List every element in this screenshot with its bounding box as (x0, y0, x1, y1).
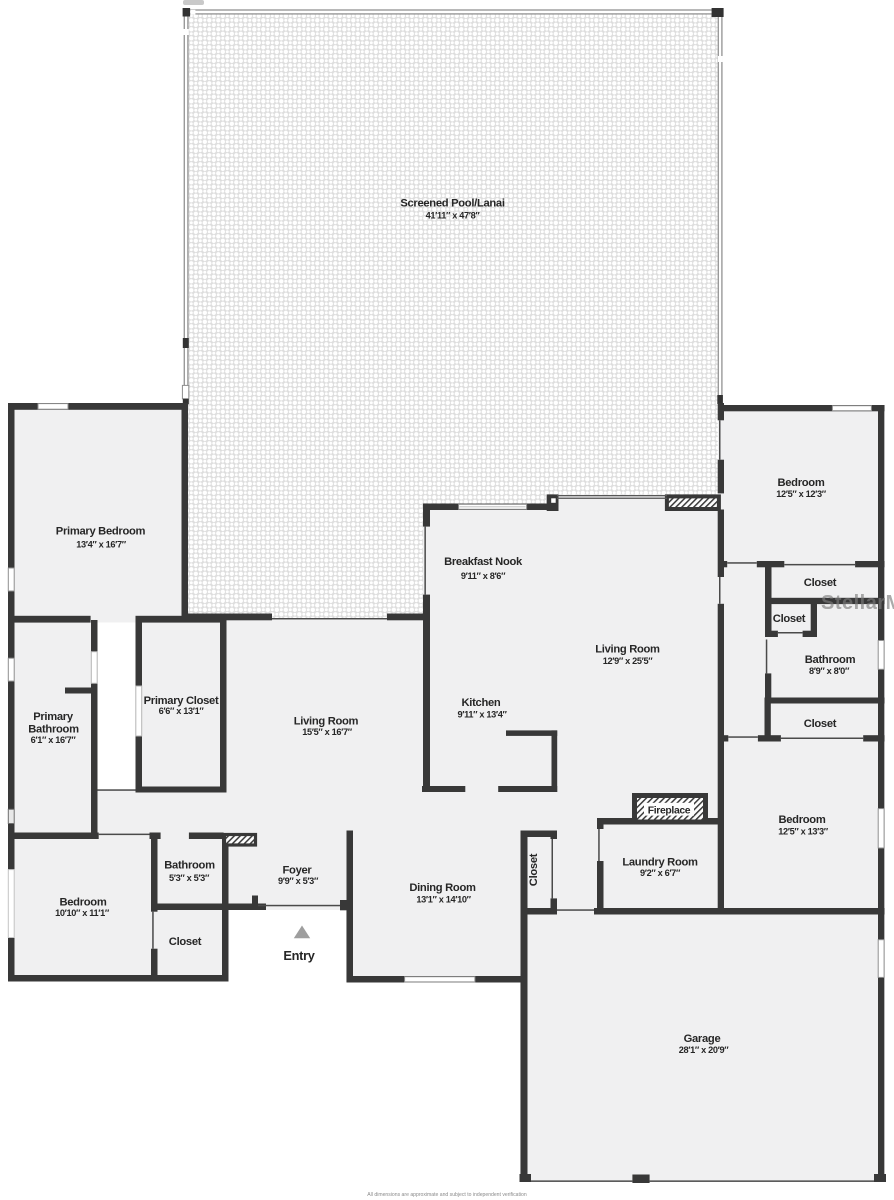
svg-text:All dimensions are approximate: All dimensions are approximate and subje… (367, 1192, 527, 1198)
svg-text:Breakfast Nook: Breakfast Nook (444, 556, 523, 568)
svg-text:Closet: Closet (169, 936, 202, 948)
svg-text:9′9″ x 5′3″: 9′9″ x 5′3″ (278, 876, 319, 886)
svg-text:Fireplace: Fireplace (648, 805, 691, 816)
svg-text:Primary: Primary (33, 711, 74, 723)
svg-text:Closet: Closet (804, 577, 837, 589)
svg-text:Kitchen: Kitchen (462, 697, 501, 709)
svg-text:15′5″ x 16′7″: 15′5″ x 16′7″ (302, 727, 352, 737)
svg-text:12′9″ x 25′5″: 12′9″ x 25′5″ (603, 656, 653, 666)
svg-text:Bedroom: Bedroom (59, 897, 106, 909)
svg-text:Bathroom: Bathroom (805, 654, 856, 666)
svg-text:Bedroom: Bedroom (778, 814, 825, 826)
svg-text:Foyer: Foyer (283, 865, 313, 877)
svg-text:28′1″ x 20′9″: 28′1″ x 20′9″ (679, 1045, 729, 1055)
svg-text:12′5″ x 12′3″: 12′5″ x 12′3″ (776, 489, 826, 499)
svg-text:Entry: Entry (283, 948, 315, 963)
svg-text:Closet: Closet (773, 613, 806, 625)
svg-text:Garage: Garage (684, 1033, 721, 1045)
svg-text:Screened Pool/Lanai: Screened Pool/Lanai (400, 198, 505, 210)
svg-text:10′10″ x 11′1″: 10′10″ x 11′1″ (55, 908, 110, 918)
svg-text:Bathroom: Bathroom (164, 860, 215, 872)
svg-text:8′9″ x 8′0″: 8′9″ x 8′0″ (809, 666, 850, 676)
svg-text:Laundry Room: Laundry Room (622, 857, 698, 869)
svg-text:Dining Room: Dining Room (409, 882, 476, 894)
svg-text:6′6″ x 13′1″: 6′6″ x 13′1″ (159, 706, 205, 716)
svg-text:13′4″ x 16′7″: 13′4″ x 16′7″ (76, 540, 126, 550)
svg-text:Living Room: Living Room (294, 716, 359, 728)
svg-text:Primary Bedroom: Primary Bedroom (56, 526, 146, 538)
svg-text:Closet: Closet (528, 853, 540, 886)
svg-text:5′3″ x 5′3″: 5′3″ x 5′3″ (169, 873, 210, 883)
svg-text:12′5″ x 13′3″: 12′5″ x 13′3″ (778, 827, 828, 837)
svg-text:9′11″ x 13′4″: 9′11″ x 13′4″ (457, 710, 507, 720)
svg-text:9′2″ x 6′7″: 9′2″ x 6′7″ (640, 868, 681, 878)
svg-text:6′1″ x 16′7″: 6′1″ x 16′7″ (31, 735, 77, 745)
svg-text:9′11″ x 8′6″: 9′11″ x 8′6″ (461, 571, 506, 581)
svg-text:Bedroom: Bedroom (777, 477, 824, 489)
svg-text:Closet: Closet (804, 718, 837, 730)
svg-text:StellarMLS: StellarMLS (821, 592, 894, 614)
svg-text:Bathroom: Bathroom (28, 724, 79, 736)
svg-text:41′11″ x 47′8″: 41′11″ x 47′8″ (426, 211, 481, 221)
svg-text:Living Room: Living Room (595, 644, 660, 656)
svg-text:13′1″ x 14′10″: 13′1″ x 14′10″ (416, 895, 471, 905)
